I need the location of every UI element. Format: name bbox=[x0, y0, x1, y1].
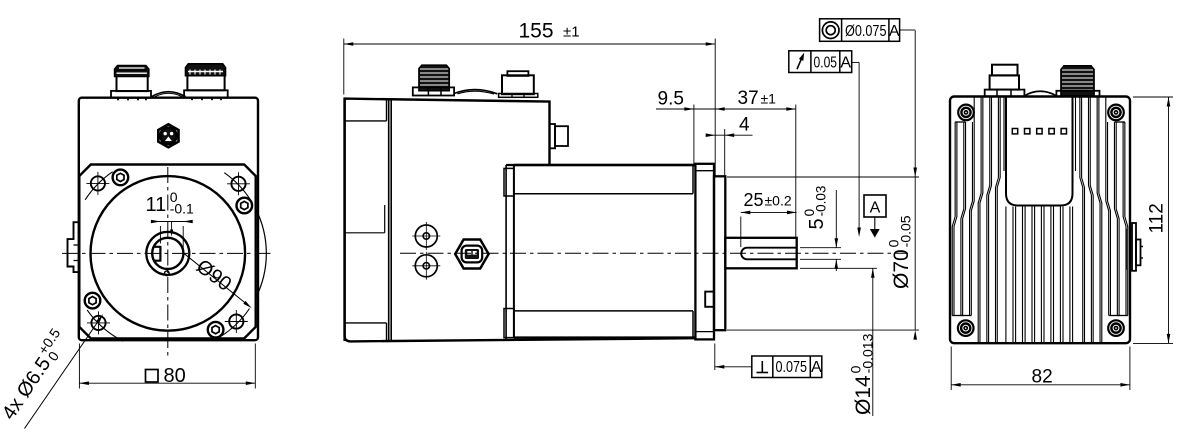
svg-text:±0.2: ±0.2 bbox=[765, 193, 792, 209]
svg-text:25: 25 bbox=[744, 190, 764, 210]
svg-text:Ø0.075: Ø0.075 bbox=[845, 23, 887, 40]
svg-text:0.075: 0.075 bbox=[776, 359, 808, 376]
svg-text:155: 155 bbox=[519, 20, 554, 43]
svg-text:0.05: 0.05 bbox=[814, 55, 838, 72]
svg-text:±1: ±1 bbox=[563, 24, 580, 41]
svg-text:A: A bbox=[811, 359, 822, 376]
svg-text:37: 37 bbox=[738, 88, 759, 109]
svg-text:A: A bbox=[889, 23, 900, 40]
svg-text:4: 4 bbox=[739, 115, 750, 136]
svg-text:A: A bbox=[870, 200, 881, 217]
svg-text:80: 80 bbox=[164, 365, 186, 387]
svg-text:82: 82 bbox=[1032, 366, 1053, 387]
svg-text:±1: ±1 bbox=[761, 91, 777, 107]
svg-text:112: 112 bbox=[1147, 203, 1168, 233]
svg-text:A: A bbox=[840, 55, 851, 72]
svg-text:9.5: 9.5 bbox=[658, 89, 684, 110]
